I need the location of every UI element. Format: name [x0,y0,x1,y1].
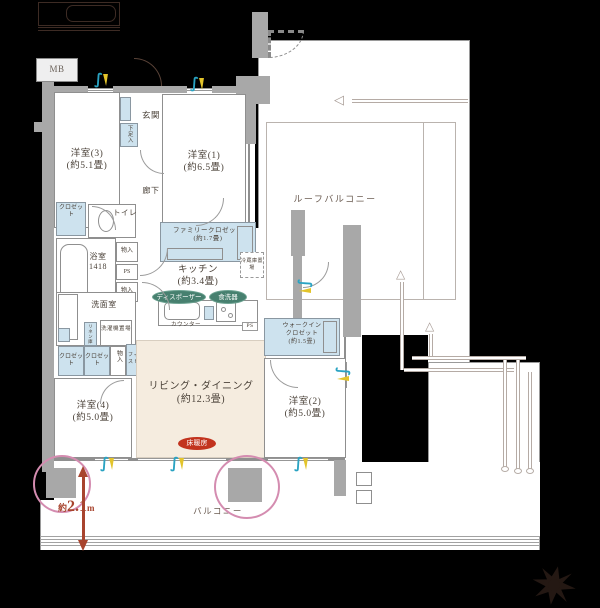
adjacent-unit-tub-outline [66,5,116,22]
balcony-railing [40,539,540,540]
wall-top-2 [113,86,187,93]
room-western3-label: 洋室(3) (約5.1畳) [54,148,120,173]
vent-icon: ∫ [294,456,310,474]
storage-label: 物入 [117,248,137,255]
drain-pipe [503,360,507,468]
dishwasher-badge: 食洗器 [209,290,247,304]
ac-unit-space [356,490,372,504]
floor-plan: ◁ △ △ MB 洋室(3) (約5.1畳) 下足入 玄関 [0,0,600,608]
closet-rod [323,321,337,353]
vent-swirl-icon: ∫ [294,454,303,472]
floor-heating-badge: 床暖房 [178,437,216,450]
corner-stamp-icon [526,559,582,608]
vent-icon: ∫ [170,456,186,474]
toilet-label: トイレ [110,208,140,218]
vent-icon: ∫ [100,456,116,474]
laundry-box: 洗濯機置場 [100,320,132,346]
front-door-arc [134,58,162,86]
drain-cap [526,468,534,474]
vent-icon: ∫ [295,279,313,295]
storage-box: 物入 [110,346,126,376]
wall-entrance-stem [246,104,256,144]
drain-cap [514,468,522,474]
dimension-prefix: 約 [58,503,67,513]
vent-icon: ∫ [190,76,206,94]
counter-label: カウンター [166,322,206,329]
vent-swirl-icon: ∫ [170,454,179,472]
bottom-black-band [0,552,600,608]
dishwasher-unit [216,302,236,322]
pipe-space-box: PS [116,264,138,280]
balcony-railing [40,536,540,537]
closet-rod [167,248,223,260]
hallway-label: 廊下 [136,186,166,196]
closet-west3: クロゼット [56,202,86,236]
living-dining-label: リビング・ダイニング (約12.3畳) [136,380,266,406]
laundry-label: 洗濯機置場 [101,326,131,333]
meter-box: MB [36,58,78,82]
dimension-arrow-head-bottom [78,540,88,551]
dimension-label: 約2.1m [58,498,95,516]
bathroom-label: 浴室 1418 [78,252,118,273]
meter-box-label: MB [37,64,77,76]
vent-swirl-icon: ∫ [297,279,315,288]
room-western1-label: 洋室(1) (約6.5畳) [162,150,246,175]
balcony-railing [40,542,540,543]
linen-box: リネン庫 [84,322,97,346]
drain-pipe [404,368,514,372]
adjacent-unit-lines [38,27,120,31]
vent-icon: ∫ [333,367,351,383]
ac-unit-space [356,472,372,486]
pillar-kitchen-east [291,210,305,256]
closet-label: クロゼット [85,354,109,368]
vanity-sink [58,328,70,342]
vent-swirl-icon: ∫ [100,454,109,472]
fridge-label: 冷蔵庫置場 [241,259,263,272]
vent-icon: ∫ [94,72,110,90]
linen-label: リネン庫 [88,324,94,344]
balcony-railing-end [539,536,540,550]
kitchen-sink-cell [204,306,214,320]
entrance-cabinet [120,97,131,121]
roof-balcony-label: ルーフバルコニー [280,194,390,206]
drain-pipe [516,360,520,470]
washroom-label: 洗面室 [82,300,126,310]
drain-cap [501,466,509,472]
black-patch-east [362,335,428,462]
vent-swirl-icon: ∫ [190,74,199,92]
shoe-box-label: 下足入 [125,125,132,143]
dimension-arrow-head-top [78,466,88,477]
fridge-space: 冷蔵庫置場 [240,252,264,278]
pillar-top [252,12,268,58]
storage-label: 物入 [115,350,122,362]
wall-east-upper [248,144,250,230]
drain-arrow-icon: △ [425,320,434,332]
wall-left [42,80,54,472]
drain-pipe [412,356,526,360]
wall-left-tab [34,122,42,132]
pillar-balcony-right [334,460,346,496]
vent-swirl-icon: ∫ [335,367,353,376]
drain-arrow-icon: △ [396,268,405,280]
drain-pipe [528,372,532,470]
closet-label: クロゼット [57,205,85,219]
closet-a: クロゼット [58,346,84,376]
pillar-highlight-circle [214,455,280,519]
storage-box: 物入 [116,242,138,262]
drain-pipe [352,99,468,103]
walk-in-closet: ウォークイン クロゼット (約1.5畳) [264,318,340,356]
pipe-space-label: PS [117,269,137,276]
drain-arrow-icon: ◁ [334,94,344,107]
shoe-box: 下足入 [120,123,138,147]
vent-swirl-icon: ∫ [94,70,103,88]
dimension-value: 2.1 [67,498,87,515]
wall-east-mid [343,225,361,337]
room-western2-label: 洋室(2) (約5.0畳) [264,396,346,421]
kitchen-label: キッチン (約3.4畳) [156,264,240,289]
balcony-railing [40,545,540,546]
closet-b: クロゼット [84,346,110,376]
drain-pipe [400,282,404,370]
dimension-unit: m [87,503,95,513]
pipe-space-label: PS [242,322,258,331]
roof-balcony-divider-line [423,122,424,300]
roof-balcony-side-area [428,362,540,466]
closet-label: クロゼット [59,354,83,368]
